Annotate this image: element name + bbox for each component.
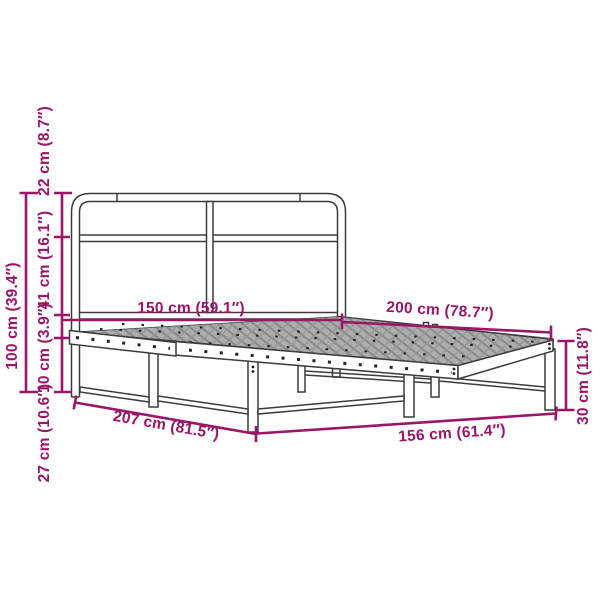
dim-label-headboard-mid-section: 41 cm (16.1″) bbox=[36, 211, 54, 310]
dim-label-under-bed-clearance: 27 cm (10.6″) bbox=[36, 384, 54, 483]
diagram-canvas: 100 cm (39.4″) 22 cm (8.7″) 41 cm (16.1″… bbox=[0, 0, 600, 600]
dim-label-total-height: 100 cm (39.4″) bbox=[4, 262, 22, 370]
dim-label-headboard-top-section: 22 cm (8.7″) bbox=[36, 106, 54, 196]
dim-label-foot-end-height: 30 cm (11.8″) bbox=[575, 327, 593, 425]
dim-label-frame-rail-height: 10 cm (3.9″) bbox=[36, 303, 54, 393]
bed-frame-drawing bbox=[0, 0, 600, 600]
dim-label-mattress-width: 150 cm (59.1″) bbox=[137, 300, 245, 318]
